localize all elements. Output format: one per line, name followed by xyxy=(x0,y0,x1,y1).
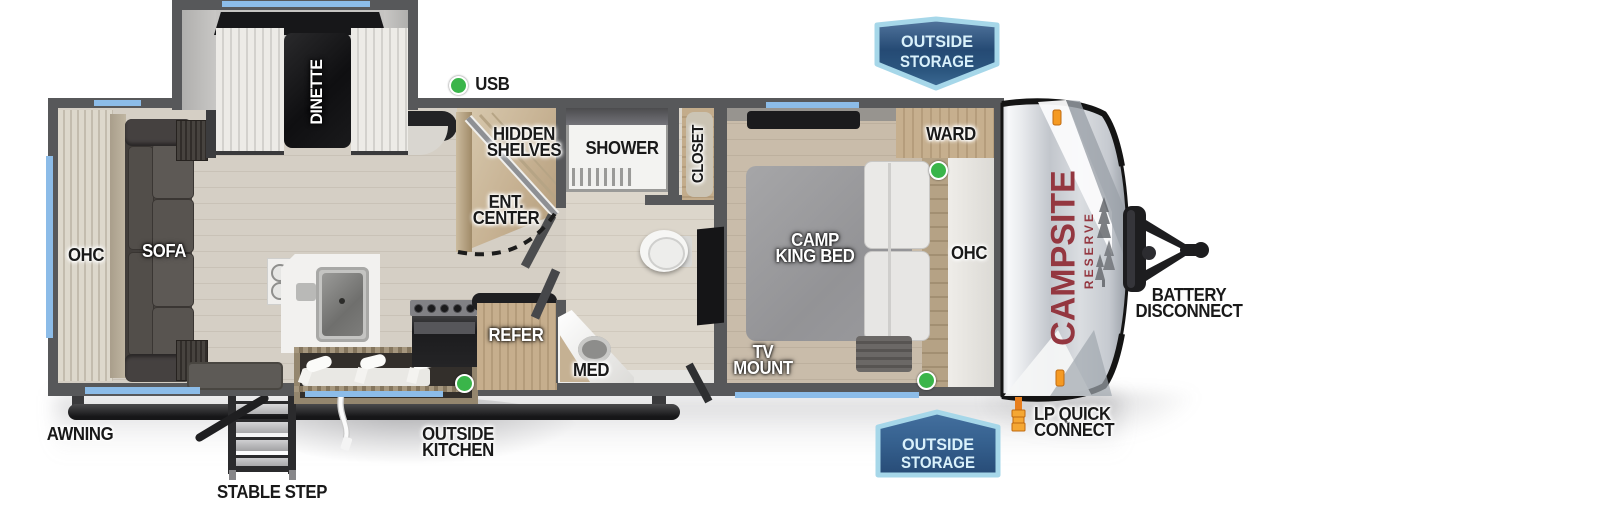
svg-text:STORAGE: STORAGE xyxy=(901,453,975,472)
svg-text:OUTSIDE: OUTSIDE xyxy=(902,435,974,454)
svg-text:OUTSIDE: OUTSIDE xyxy=(901,32,973,51)
svg-text:STORAGE: STORAGE xyxy=(900,52,974,71)
